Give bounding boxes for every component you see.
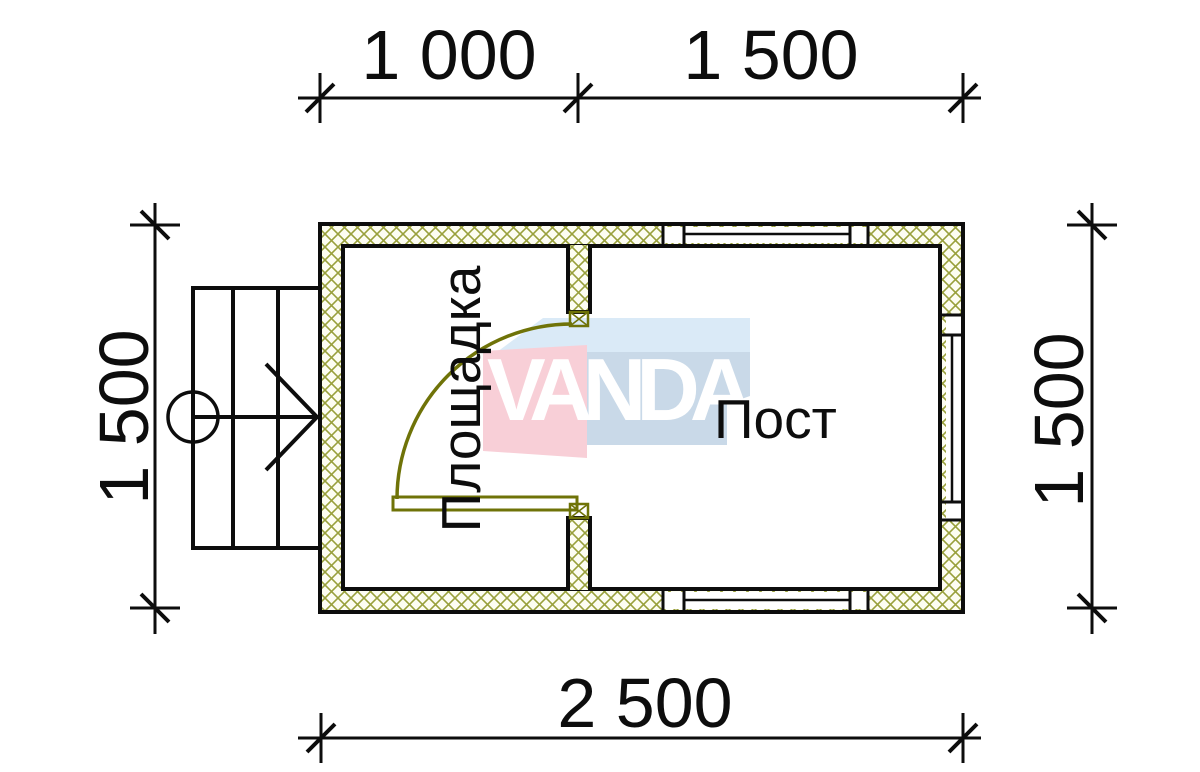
dimension-left: 1 500 [85, 203, 180, 634]
entry-steps [168, 288, 320, 548]
watermark-text: VANDA [487, 340, 752, 439]
floor-plan-canvas: VANDA [0, 0, 1200, 772]
window-gap-right [946, 315, 961, 520]
partition-upper-stub [568, 245, 590, 312]
dimension-label-bottom: 2 500 [557, 664, 732, 742]
floor-plan-page: VANDA [0, 0, 1200, 772]
partition-lower-stub [568, 518, 590, 590]
room-label-ploshchadka: Площадка [430, 265, 492, 532]
dimension-label-top-2: 1 500 [683, 16, 858, 94]
dimension-label-top-1: 1 000 [361, 16, 536, 94]
dimension-right: 1 500 [1020, 203, 1117, 634]
dimension-bottom: 2 500 [298, 664, 981, 763]
room-label-post: Пост [714, 388, 837, 450]
dimension-label-right: 1 500 [1020, 332, 1098, 507]
dimension-top: 1 000 1 500 [298, 16, 981, 123]
dimension-label-left: 1 500 [85, 329, 163, 504]
vanda-watermark: VANDA [483, 318, 752, 458]
